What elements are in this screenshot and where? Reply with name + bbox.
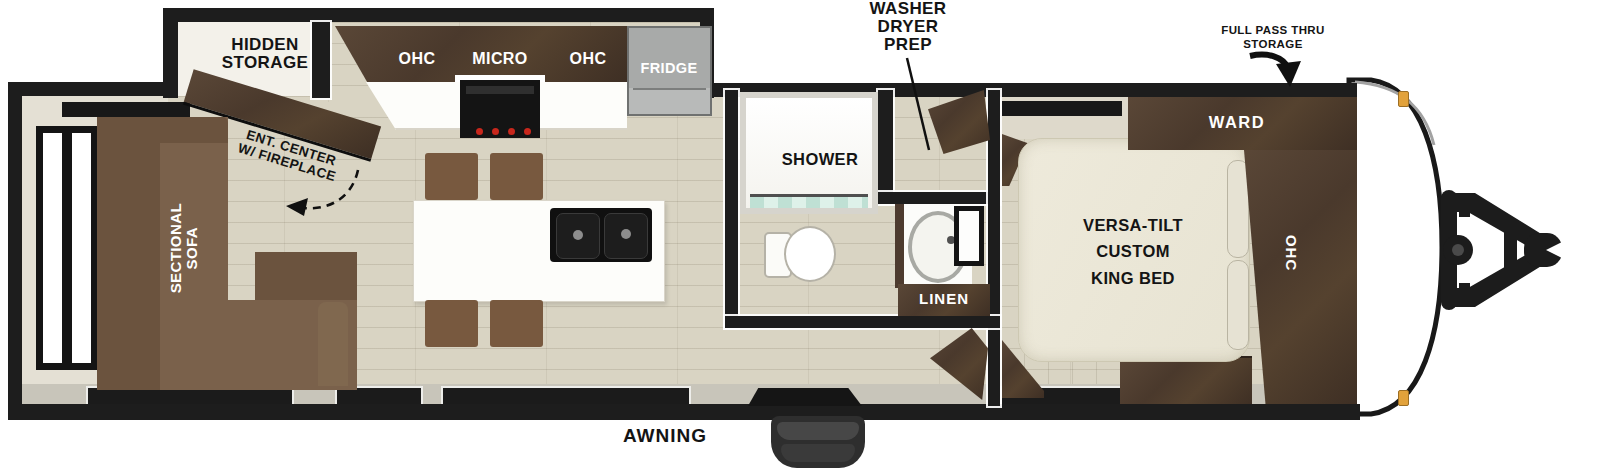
burner-dot	[492, 128, 499, 135]
sofa-armrest-top	[97, 117, 228, 143]
sofa-armrest-right	[318, 302, 348, 386]
sectional-sofa-line2: SOFA	[184, 188, 200, 308]
entry-door-sill	[748, 388, 862, 406]
bath-left-wall	[725, 90, 738, 328]
rear-top-wall	[8, 82, 166, 96]
window-small	[337, 388, 421, 404]
sink-drain	[621, 229, 631, 239]
marker-light-icon	[1398, 390, 1409, 406]
bath-bottom-wall	[725, 316, 1000, 328]
left-wall	[8, 82, 22, 418]
ward-label: WARD	[1180, 114, 1294, 132]
burner-dot	[524, 128, 531, 135]
range-stove-icon	[460, 80, 540, 138]
hitch-icon	[1441, 190, 1564, 310]
window-sofa	[88, 388, 292, 404]
stool	[490, 153, 543, 200]
rv-floorplan: HIDDEN STORAGE OHC MICRO OHC FRIDGE ENT.…	[0, 0, 1600, 471]
shower-divider-wall	[878, 90, 893, 202]
bed-foot-bench	[1120, 356, 1252, 404]
fridge-drawer-line	[633, 88, 706, 90]
king-bed-line1: VERSA-TILT	[1028, 212, 1238, 238]
toilet-bowl	[784, 226, 836, 282]
burner-dot	[508, 128, 515, 135]
kitchen-micro-label: MICRO	[462, 50, 538, 67]
bottom-wall	[8, 404, 1360, 420]
washer-dryer-prep-label: WASHER DRYER PREP	[852, 0, 964, 54]
king-bed-line2: CUSTOM	[1028, 238, 1238, 264]
sink-drain	[573, 230, 583, 240]
awning-label: AWNING	[606, 426, 724, 447]
sectional-sofa-line1: SECTIONAL	[168, 188, 184, 308]
king-bed-line3: KING BED	[1028, 265, 1238, 291]
full-pass-thru-label: FULL PASS THRU STORAGE	[1206, 24, 1340, 51]
window-mullion	[62, 133, 72, 363]
window-island	[443, 388, 689, 404]
stool	[425, 300, 478, 347]
full-pass-thru-line1: FULL PASS THRU	[1206, 24, 1340, 38]
shower-glass	[750, 197, 868, 208]
stool	[425, 153, 478, 200]
washer-dryer-line2: DRYER	[852, 18, 964, 36]
linen-label: LINEN	[898, 291, 990, 307]
full-pass-thru-line2: STORAGE	[1206, 38, 1340, 52]
entry-steps-icon	[771, 416, 865, 468]
washer-dryer-line3: PREP	[852, 36, 964, 54]
hidden-storage-line1: HIDDEN	[200, 36, 330, 54]
sectional-sofa-label: SECTIONAL SOFA	[168, 188, 200, 308]
hidden-storage-line2: STORAGE	[200, 54, 330, 72]
washer-dryer-line1: WASHER	[852, 0, 964, 18]
rear-tv-strip	[62, 102, 190, 117]
toilet-icon	[764, 226, 834, 280]
bath-bedroom-wall	[988, 90, 1000, 406]
sink-icon	[550, 208, 652, 262]
sofa-back-cushions	[97, 117, 160, 390]
entry-step	[781, 444, 855, 462]
washer-closet-bottom-wall	[878, 192, 1000, 204]
entry-step	[777, 422, 859, 440]
king-bed-label: VERSA-TILT CUSTOM KING BED	[1028, 212, 1238, 291]
mirror-icon	[954, 206, 984, 266]
kitchen-ohc-left-label: OHC	[385, 50, 449, 67]
range-top-band	[466, 86, 534, 94]
bed-ohc-label: OHC	[1283, 218, 1299, 288]
marker-light-icon	[1398, 91, 1409, 107]
fridge-label: FRIDGE	[630, 61, 708, 77]
hidden-storage-label: HIDDEN STORAGE	[200, 36, 330, 73]
burner-dot	[476, 128, 483, 135]
kitchen-ohc-right-label: OHC	[556, 50, 620, 67]
mirror-glass	[959, 211, 979, 261]
stool	[490, 300, 543, 347]
bedroom-tv-strip	[1002, 101, 1122, 116]
window-rear-wall	[36, 126, 98, 370]
vanity-backsplash	[895, 204, 904, 288]
shower-label: SHOWER	[758, 151, 882, 169]
slide-top-wall	[163, 8, 714, 22]
